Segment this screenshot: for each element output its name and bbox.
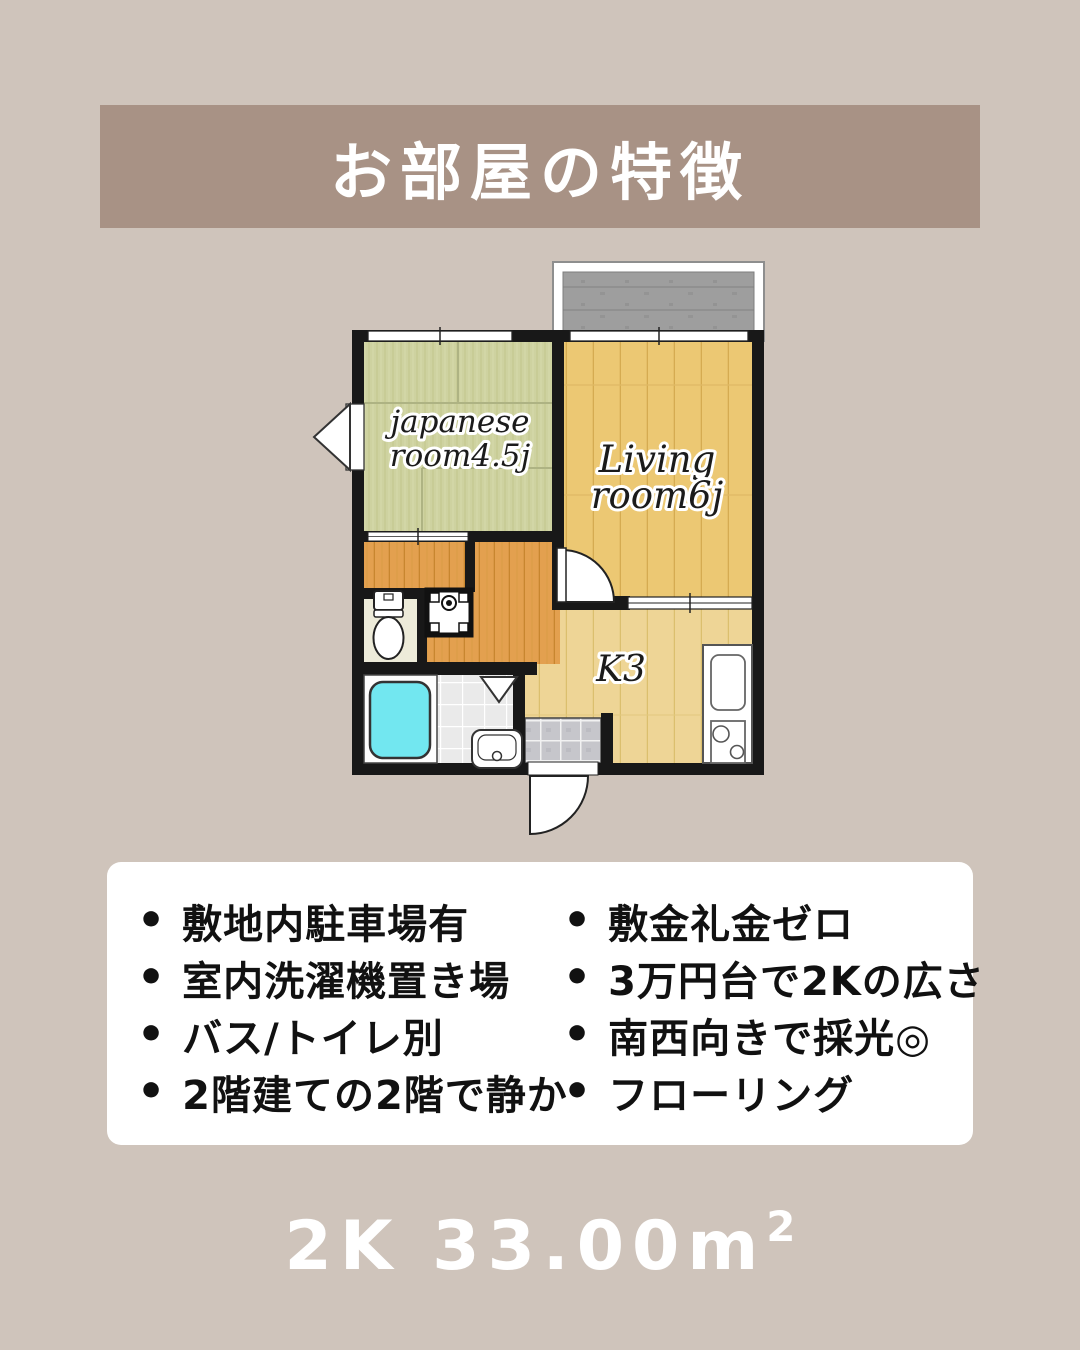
feature-item: • フローリング	[563, 1063, 985, 1120]
area-unit: m	[687, 1207, 766, 1286]
kitchen-sink	[711, 655, 745, 710]
page-title: お部屋の特徴	[330, 122, 750, 212]
bathtub	[364, 675, 437, 763]
bullet-icon: •	[563, 899, 592, 943]
floor-type: 2K	[285, 1207, 401, 1286]
toilet	[374, 591, 404, 659]
feature-text: 敷地内駐車場有	[182, 892, 469, 950]
closet-right-floor	[475, 540, 552, 592]
bullet-icon: •	[137, 899, 166, 943]
washing-machine-pan	[427, 590, 471, 635]
area-value: 33.00	[432, 1207, 687, 1286]
floor-plan: japanese room4.5j Living room6j K3	[310, 255, 770, 845]
area-summary: 2K 33.00m2	[0, 1202, 1080, 1286]
bay-window	[314, 404, 364, 470]
feature-item: • 敷地内駐車場有	[137, 892, 563, 949]
feature-item: • 3万円台で2Kの広さ	[563, 949, 985, 1006]
bullet-icon: •	[563, 956, 592, 1000]
feature-item: • 敷金礼金ゼロ	[563, 892, 985, 949]
living-room-label-line2: room6j	[591, 474, 723, 517]
closet-left-floor	[364, 540, 465, 590]
features-card: • 敷地内駐車場有 • 室内洗濯機置き場 • バス/トイレ別 • 2階建ての2階…	[107, 862, 973, 1145]
kitchen-counter	[703, 645, 752, 763]
japanese-room-label-line2: room4.5j	[390, 438, 531, 474]
bullet-icon: •	[137, 1013, 166, 1057]
kitchen-label: K3	[595, 649, 646, 690]
property-poster: お部屋の特徴	[0, 0, 1080, 1350]
feature-item: • 室内洗濯機置き場	[137, 949, 563, 1006]
floor-plan-svg: japanese room4.5j Living room6j K3	[310, 255, 770, 845]
entrance-floor	[525, 718, 601, 763]
bullet-icon: •	[563, 1013, 592, 1057]
feature-item: • バス/トイレ別	[137, 1006, 563, 1063]
feature-text: バス/トイレ別	[182, 1006, 444, 1064]
bullet-icon: •	[563, 1070, 592, 1114]
features-column-right: • 敷金礼金ゼロ • 3万円台で2Kの広さ • 南西向きで採光◎ • フローリン…	[563, 892, 985, 1145]
feature-text: 室内洗濯機置き場	[182, 949, 510, 1007]
feature-text: フローリング	[608, 1063, 854, 1121]
feature-text: 南西向きで採光◎	[608, 1006, 931, 1064]
feature-item: • 2階建ての2階で静か	[137, 1063, 563, 1120]
header-banner: お部屋の特徴	[100, 105, 980, 228]
japanese-room-label-line1: japanese	[385, 404, 530, 440]
feature-text: 3万円台で2Kの広さ	[608, 949, 985, 1007]
feature-item: • 南西向きで採光◎	[563, 1006, 985, 1063]
bullet-icon: •	[137, 956, 166, 1000]
features-column-left: • 敷地内駐車場有 • 室内洗濯機置き場 • バス/トイレ別 • 2階建ての2階…	[137, 892, 563, 1145]
feature-text: 敷金礼金ゼロ	[608, 892, 854, 950]
entrance-door	[528, 762, 598, 834]
feature-text: 2階建ての2階で静か	[182, 1063, 568, 1121]
bullet-icon: •	[137, 1070, 166, 1114]
area-unit-exponent: 2	[766, 1202, 795, 1251]
bathroom-sink	[472, 730, 522, 768]
